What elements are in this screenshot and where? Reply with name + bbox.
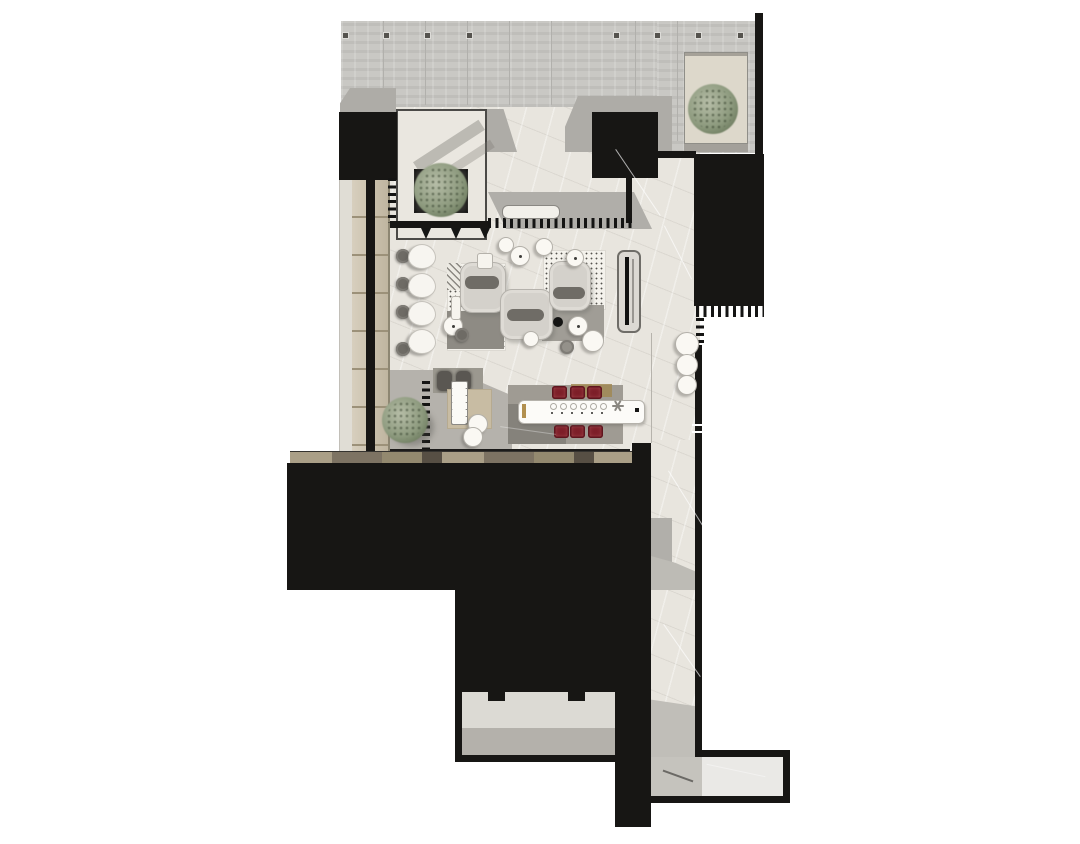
wall-bolt: [696, 33, 701, 38]
wall-block-east: [694, 154, 764, 306]
corridor-stool: [677, 375, 697, 395]
outer-wall-northeast: [755, 13, 763, 154]
piano-stool: [463, 427, 483, 447]
gold-screen-bar: [522, 404, 526, 418]
round-tea-table: [566, 249, 584, 267]
column-block-east: [592, 112, 658, 178]
dining-chair-red: [588, 425, 603, 438]
round-tea-table: [498, 237, 514, 253]
shelf-light-strip: [339, 180, 353, 455]
stool: [523, 331, 539, 347]
wall-bolt: [738, 33, 743, 38]
exit-wall-south: [648, 796, 790, 803]
awning-tooth: [421, 228, 431, 239]
tulip-chair: [408, 301, 436, 326]
square-side-table: [477, 253, 493, 269]
sofa-cushion: [465, 276, 499, 289]
place-setting: [560, 403, 567, 410]
table-dot: [591, 412, 593, 414]
dining-chair-red: [570, 425, 585, 438]
performer-chair: [437, 371, 452, 391]
place-setting: [570, 403, 577, 410]
door-tick: [692, 424, 704, 426]
tree-foliage-speckle: [418, 167, 463, 212]
dining-chair-red: [587, 386, 602, 399]
comb-grille-west: [388, 178, 396, 223]
tree-foliage-speckle: [692, 88, 734, 130]
table-black-square: [635, 408, 639, 412]
stool: [560, 340, 574, 354]
lower-room-wall-south: [455, 755, 615, 762]
column-block-west: [339, 112, 397, 180]
corridor-stool: [675, 332, 699, 356]
floral-centerpiece: [612, 400, 624, 412]
glass-partition-line: [626, 178, 632, 223]
wall-bolt: [467, 33, 472, 38]
tulip-chair: [408, 329, 436, 354]
white-console-bar: [451, 296, 461, 320]
table-dot: [561, 412, 563, 414]
lounge-chair-round: [582, 330, 604, 352]
wall-joint: [551, 21, 552, 105]
tea-room-tree: [414, 163, 468, 217]
wall-bolt: [343, 33, 348, 38]
tree-foliage-speckle: [386, 401, 425, 440]
sofa-cushion: [553, 287, 585, 299]
wall-bolt: [425, 33, 430, 38]
wall-mass-southwest: [287, 463, 651, 590]
wall-bolt: [614, 33, 619, 38]
wall-bolt: [384, 33, 389, 38]
dining-chair-red: [552, 386, 567, 399]
awning-tooth: [451, 228, 461, 239]
fireplace-flame-bar: [625, 257, 629, 325]
corridor-stool: [676, 354, 698, 376]
place-setting: [550, 403, 557, 410]
round-tea-table: [510, 246, 530, 266]
door-tick: [692, 431, 704, 433]
floor-exit-lobby: [702, 757, 783, 796]
dining-chair-red: [554, 425, 569, 438]
dining-chair-red: [570, 386, 585, 399]
sofa-northeast: [549, 261, 591, 311]
lower-room-floor-light: [462, 692, 615, 728]
floor-plant-west: [382, 397, 428, 443]
sofa-cushion: [507, 309, 544, 321]
place-setting: [580, 403, 587, 410]
table-dot: [581, 412, 583, 414]
awning-tooth: [480, 228, 490, 239]
door-notch: [568, 692, 585, 701]
place-setting: [600, 403, 607, 410]
stool: [455, 328, 469, 342]
exit-wall-north: [695, 750, 790, 757]
piano: [451, 381, 468, 425]
wall-joint: [509, 21, 510, 105]
shelf-spine-wall: [366, 180, 375, 456]
bench-seat: [502, 205, 560, 219]
comb-grille-north: [488, 218, 633, 228]
black-side-table: [553, 317, 563, 327]
comb-grille-east-block: [696, 306, 764, 317]
lower-room-wall-west: [455, 692, 462, 762]
table-dot: [571, 412, 573, 414]
wall-column-south: [615, 692, 651, 827]
round-tea-table: [535, 238, 553, 256]
floor-plan-canvas: [0, 0, 1080, 844]
tulip-chair: [408, 273, 436, 298]
wall-mass-south-step: [632, 443, 651, 465]
east-corridor-wall: [695, 345, 702, 757]
awning-bar: [390, 221, 488, 228]
terrace-tree: [688, 84, 738, 134]
place-setting: [590, 403, 597, 410]
table-dot: [601, 412, 603, 414]
door-notch: [488, 692, 505, 701]
wall-joint: [677, 21, 678, 141]
lintel-beam: [657, 151, 696, 158]
wall-mass-south-center: [455, 590, 651, 692]
fireplace-screen: [617, 250, 641, 333]
rug-hatch-corner: [447, 263, 461, 290]
lower-room-floor-gray: [462, 728, 615, 755]
table-dot: [551, 412, 553, 414]
tulip-chair: [408, 244, 436, 269]
wall-bolt: [655, 33, 660, 38]
fireplace-inner-line: [632, 259, 634, 323]
corridor-glass-line: [651, 333, 652, 443]
wall-joint: [635, 21, 636, 105]
